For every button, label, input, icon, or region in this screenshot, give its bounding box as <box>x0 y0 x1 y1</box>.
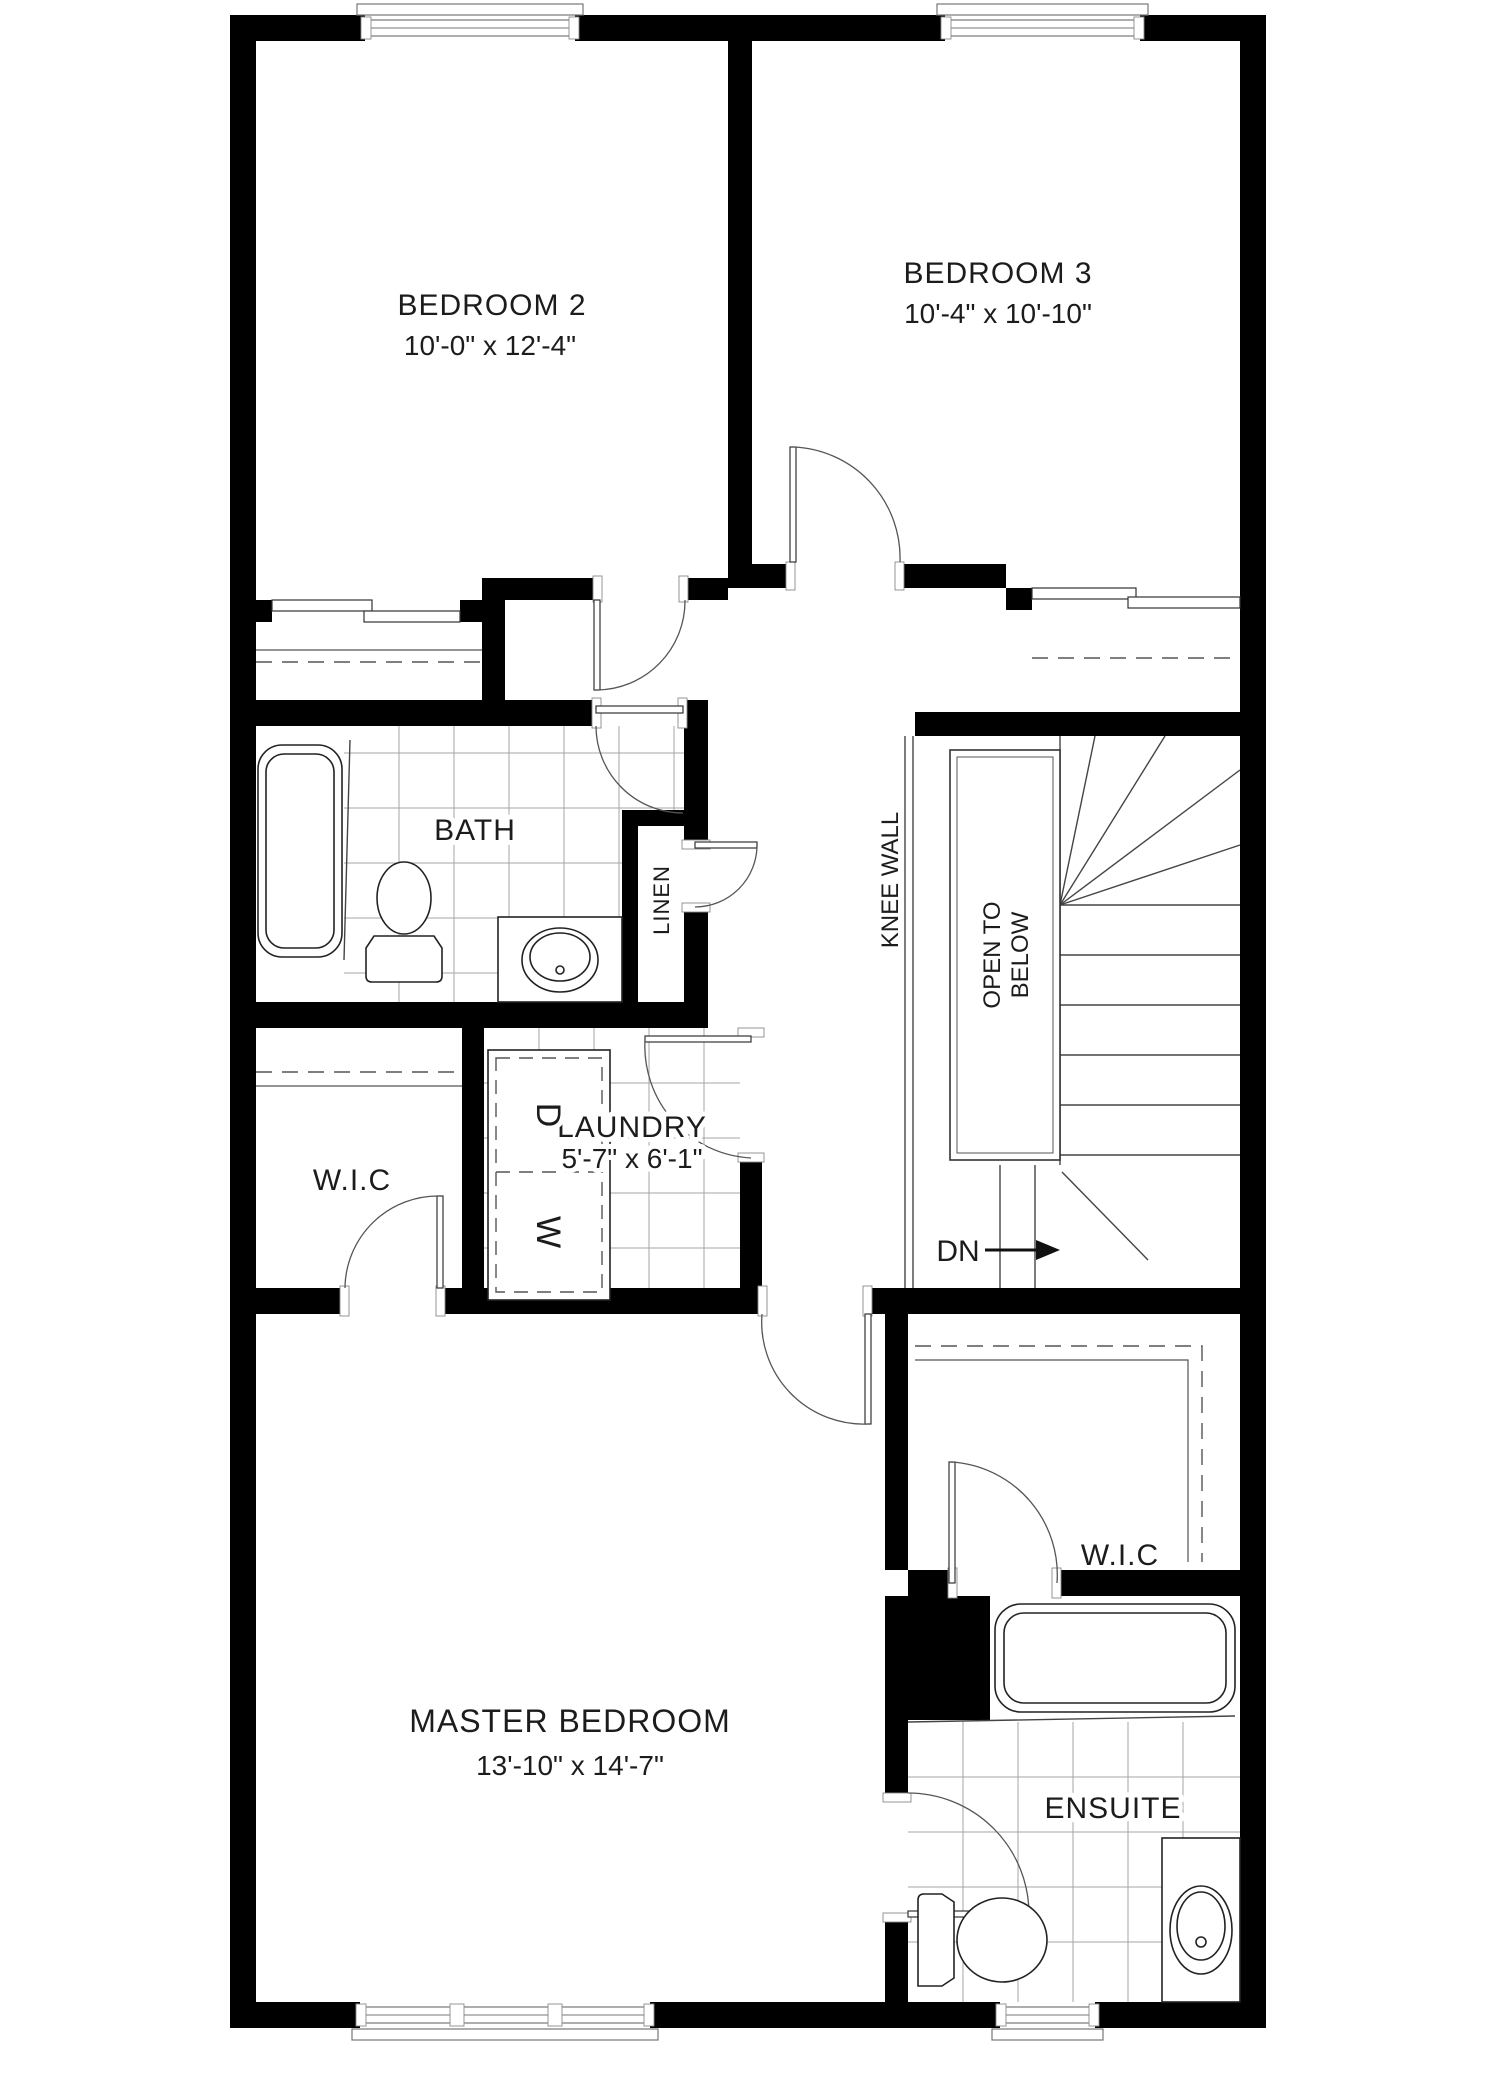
open-to-below-label-2: BELOW <box>1007 911 1034 998</box>
vanity-ensuite <box>1162 1838 1240 2002</box>
wic-right-label: W.I.C <box>1081 1539 1159 1572</box>
floor-plan-page: BEDROOM 2 10'-0" x 12'-4" BEDROOM 3 10'-… <box>0 0 1500 2079</box>
wall-bath-south <box>230 1002 708 1028</box>
door-wic-right <box>948 1462 1061 1598</box>
wall-stairwell-north <box>915 712 1240 736</box>
faucet-bath <box>556 966 564 974</box>
ensuite-label: ENSUITE <box>1044 1792 1181 1825</box>
bath-label: BATH <box>434 814 516 847</box>
linen-label: LINEN <box>649 865 674 935</box>
door-bath <box>592 698 687 813</box>
wic-left-rod <box>256 1072 462 1086</box>
faucet-ensuite <box>1196 1937 1206 1947</box>
down-label: DN <box>936 1235 979 1268</box>
bedroom2-closet-shelf <box>256 650 482 662</box>
stairs-down-arrow <box>985 1240 1060 1260</box>
bedroom3-label: BEDROOM 3 <box>903 257 1092 290</box>
wall-linen-west <box>622 810 638 1002</box>
washer-label: W <box>529 1216 567 1248</box>
door-master <box>758 1286 872 1424</box>
wall-bedroom-divider <box>728 41 752 588</box>
window-bedroom2 <box>357 4 583 39</box>
wall-master-north <box>868 1288 1240 1314</box>
dryer-label: D <box>529 1103 567 1128</box>
wic-right-rod <box>915 1346 1202 1562</box>
toilet-bath <box>366 862 442 982</box>
window-master <box>352 2004 658 2040</box>
laundry-dims: 5'-7" x 6'-1" <box>561 1143 702 1174</box>
arrow-head-icon <box>1036 1240 1060 1260</box>
master-dims: 13'-10" x 14'-7" <box>476 1750 664 1781</box>
master-label: MASTER BEDROOM <box>409 1703 731 1739</box>
laundry-label: LAUNDRY <box>557 1111 707 1144</box>
door-bedroom2 <box>593 576 688 690</box>
bedroom2-closet-doors <box>272 600 460 622</box>
floor-plan-drawing: BEDROOM 2 10'-0" x 12'-4" BEDROOM 3 10'-… <box>0 0 1500 2079</box>
wall-tub-surround <box>885 1596 990 1720</box>
door-bedroom3 <box>786 447 904 590</box>
door-linen <box>682 840 757 912</box>
knee-wall-label: KNEE WALL <box>877 812 904 949</box>
bedroom2-label: BEDROOM 2 <box>397 289 586 322</box>
window-ensuite <box>992 2004 1103 2040</box>
bedroom2-dims: 10'-0" x 12'-4" <box>404 330 576 361</box>
bedroom3-dims: 10'-4" x 10'-10" <box>904 298 1092 329</box>
door-wic-left <box>340 1196 445 1316</box>
vanity-bath <box>498 917 622 1002</box>
bedroom3-closet-doors <box>1032 588 1240 608</box>
washer-dryer <box>488 1050 610 1300</box>
knee-wall <box>905 736 913 1288</box>
open-to-below-label-1: OPEN TO <box>979 901 1006 1008</box>
bathtub-bath <box>258 740 350 960</box>
wic-left-label: W.I.C <box>313 1164 391 1197</box>
window-bedroom3 <box>937 4 1148 39</box>
toilet-ensuite <box>918 1894 1047 1986</box>
